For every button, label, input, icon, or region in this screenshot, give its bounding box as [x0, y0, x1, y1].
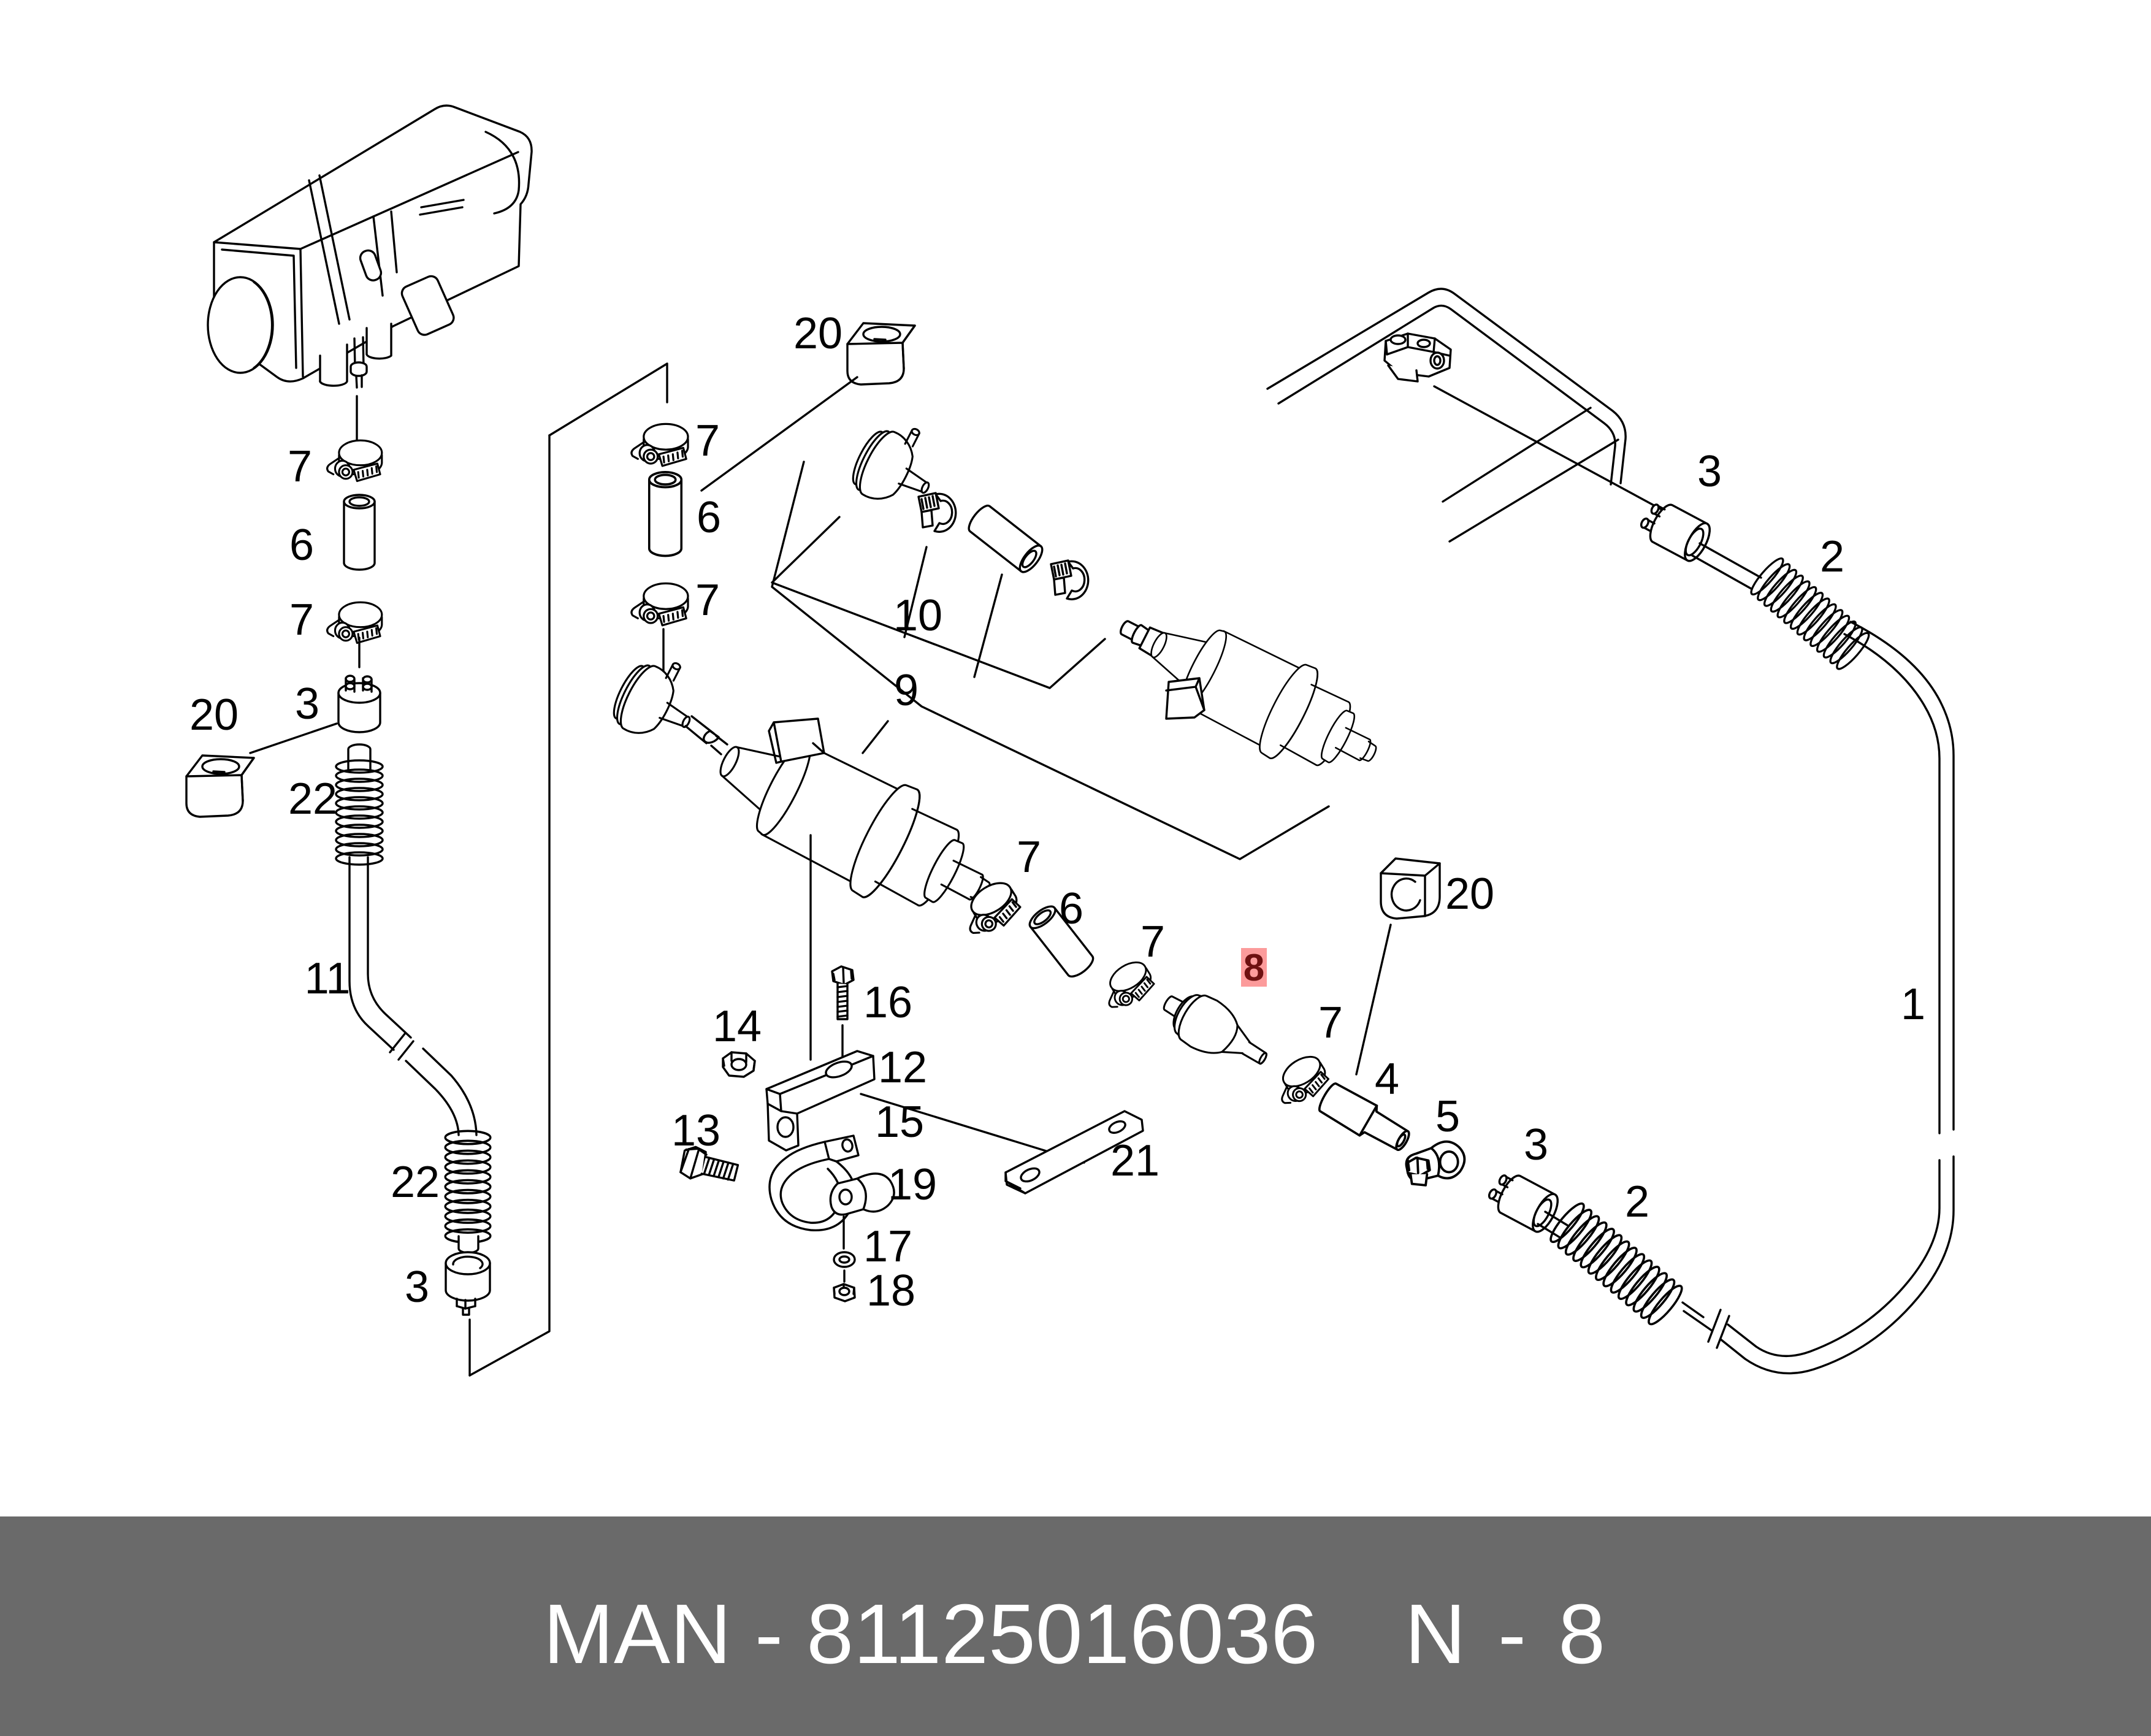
svg-text:12: 12 — [878, 1043, 927, 1092]
svg-text:14: 14 — [713, 1002, 762, 1051]
svg-text:17: 17 — [863, 1222, 912, 1271]
svg-text:7: 7 — [695, 576, 720, 625]
svg-text:22: 22 — [391, 1158, 440, 1207]
svg-text:7: 7 — [695, 416, 720, 465]
svg-text:3: 3 — [1524, 1120, 1548, 1169]
svg-text:4: 4 — [1375, 1055, 1399, 1104]
svg-text:2: 2 — [1820, 532, 1844, 581]
svg-text:20: 20 — [793, 309, 842, 358]
svg-text:6: 6 — [697, 493, 721, 542]
svg-text:22: 22 — [288, 774, 337, 824]
svg-text:20: 20 — [1445, 870, 1494, 919]
svg-text:7: 7 — [289, 595, 314, 644]
svg-text:2: 2 — [1625, 1177, 1649, 1226]
svg-text:9: 9 — [894, 666, 919, 715]
svg-text:7: 7 — [1140, 917, 1165, 966]
svg-text:10: 10 — [893, 591, 942, 640]
svg-text:3: 3 — [1697, 447, 1722, 496]
svg-text:6: 6 — [289, 521, 314, 570]
svg-text:21: 21 — [1110, 1136, 1160, 1185]
svg-text:N - 8: N - 8 — [1405, 1587, 1610, 1681]
svg-text:5: 5 — [1435, 1092, 1460, 1141]
svg-text:7: 7 — [1017, 833, 1041, 882]
svg-text:3: 3 — [405, 1263, 429, 1312]
svg-text:6: 6 — [1059, 884, 1083, 933]
svg-text:19: 19 — [888, 1160, 937, 1209]
svg-text:8: 8 — [1244, 947, 1264, 989]
svg-text:3: 3 — [295, 679, 319, 728]
svg-text:7: 7 — [288, 442, 312, 491]
svg-text:MAN - 81125016036: MAN - 81125016036 — [543, 1587, 1318, 1681]
svg-text:16: 16 — [863, 978, 912, 1027]
svg-text:1: 1 — [1901, 980, 1925, 1029]
svg-text:11: 11 — [305, 954, 351, 1003]
svg-text:20: 20 — [189, 690, 239, 740]
svg-text:18: 18 — [866, 1266, 915, 1315]
svg-text:13: 13 — [671, 1106, 720, 1155]
svg-text:7: 7 — [1318, 998, 1343, 1047]
